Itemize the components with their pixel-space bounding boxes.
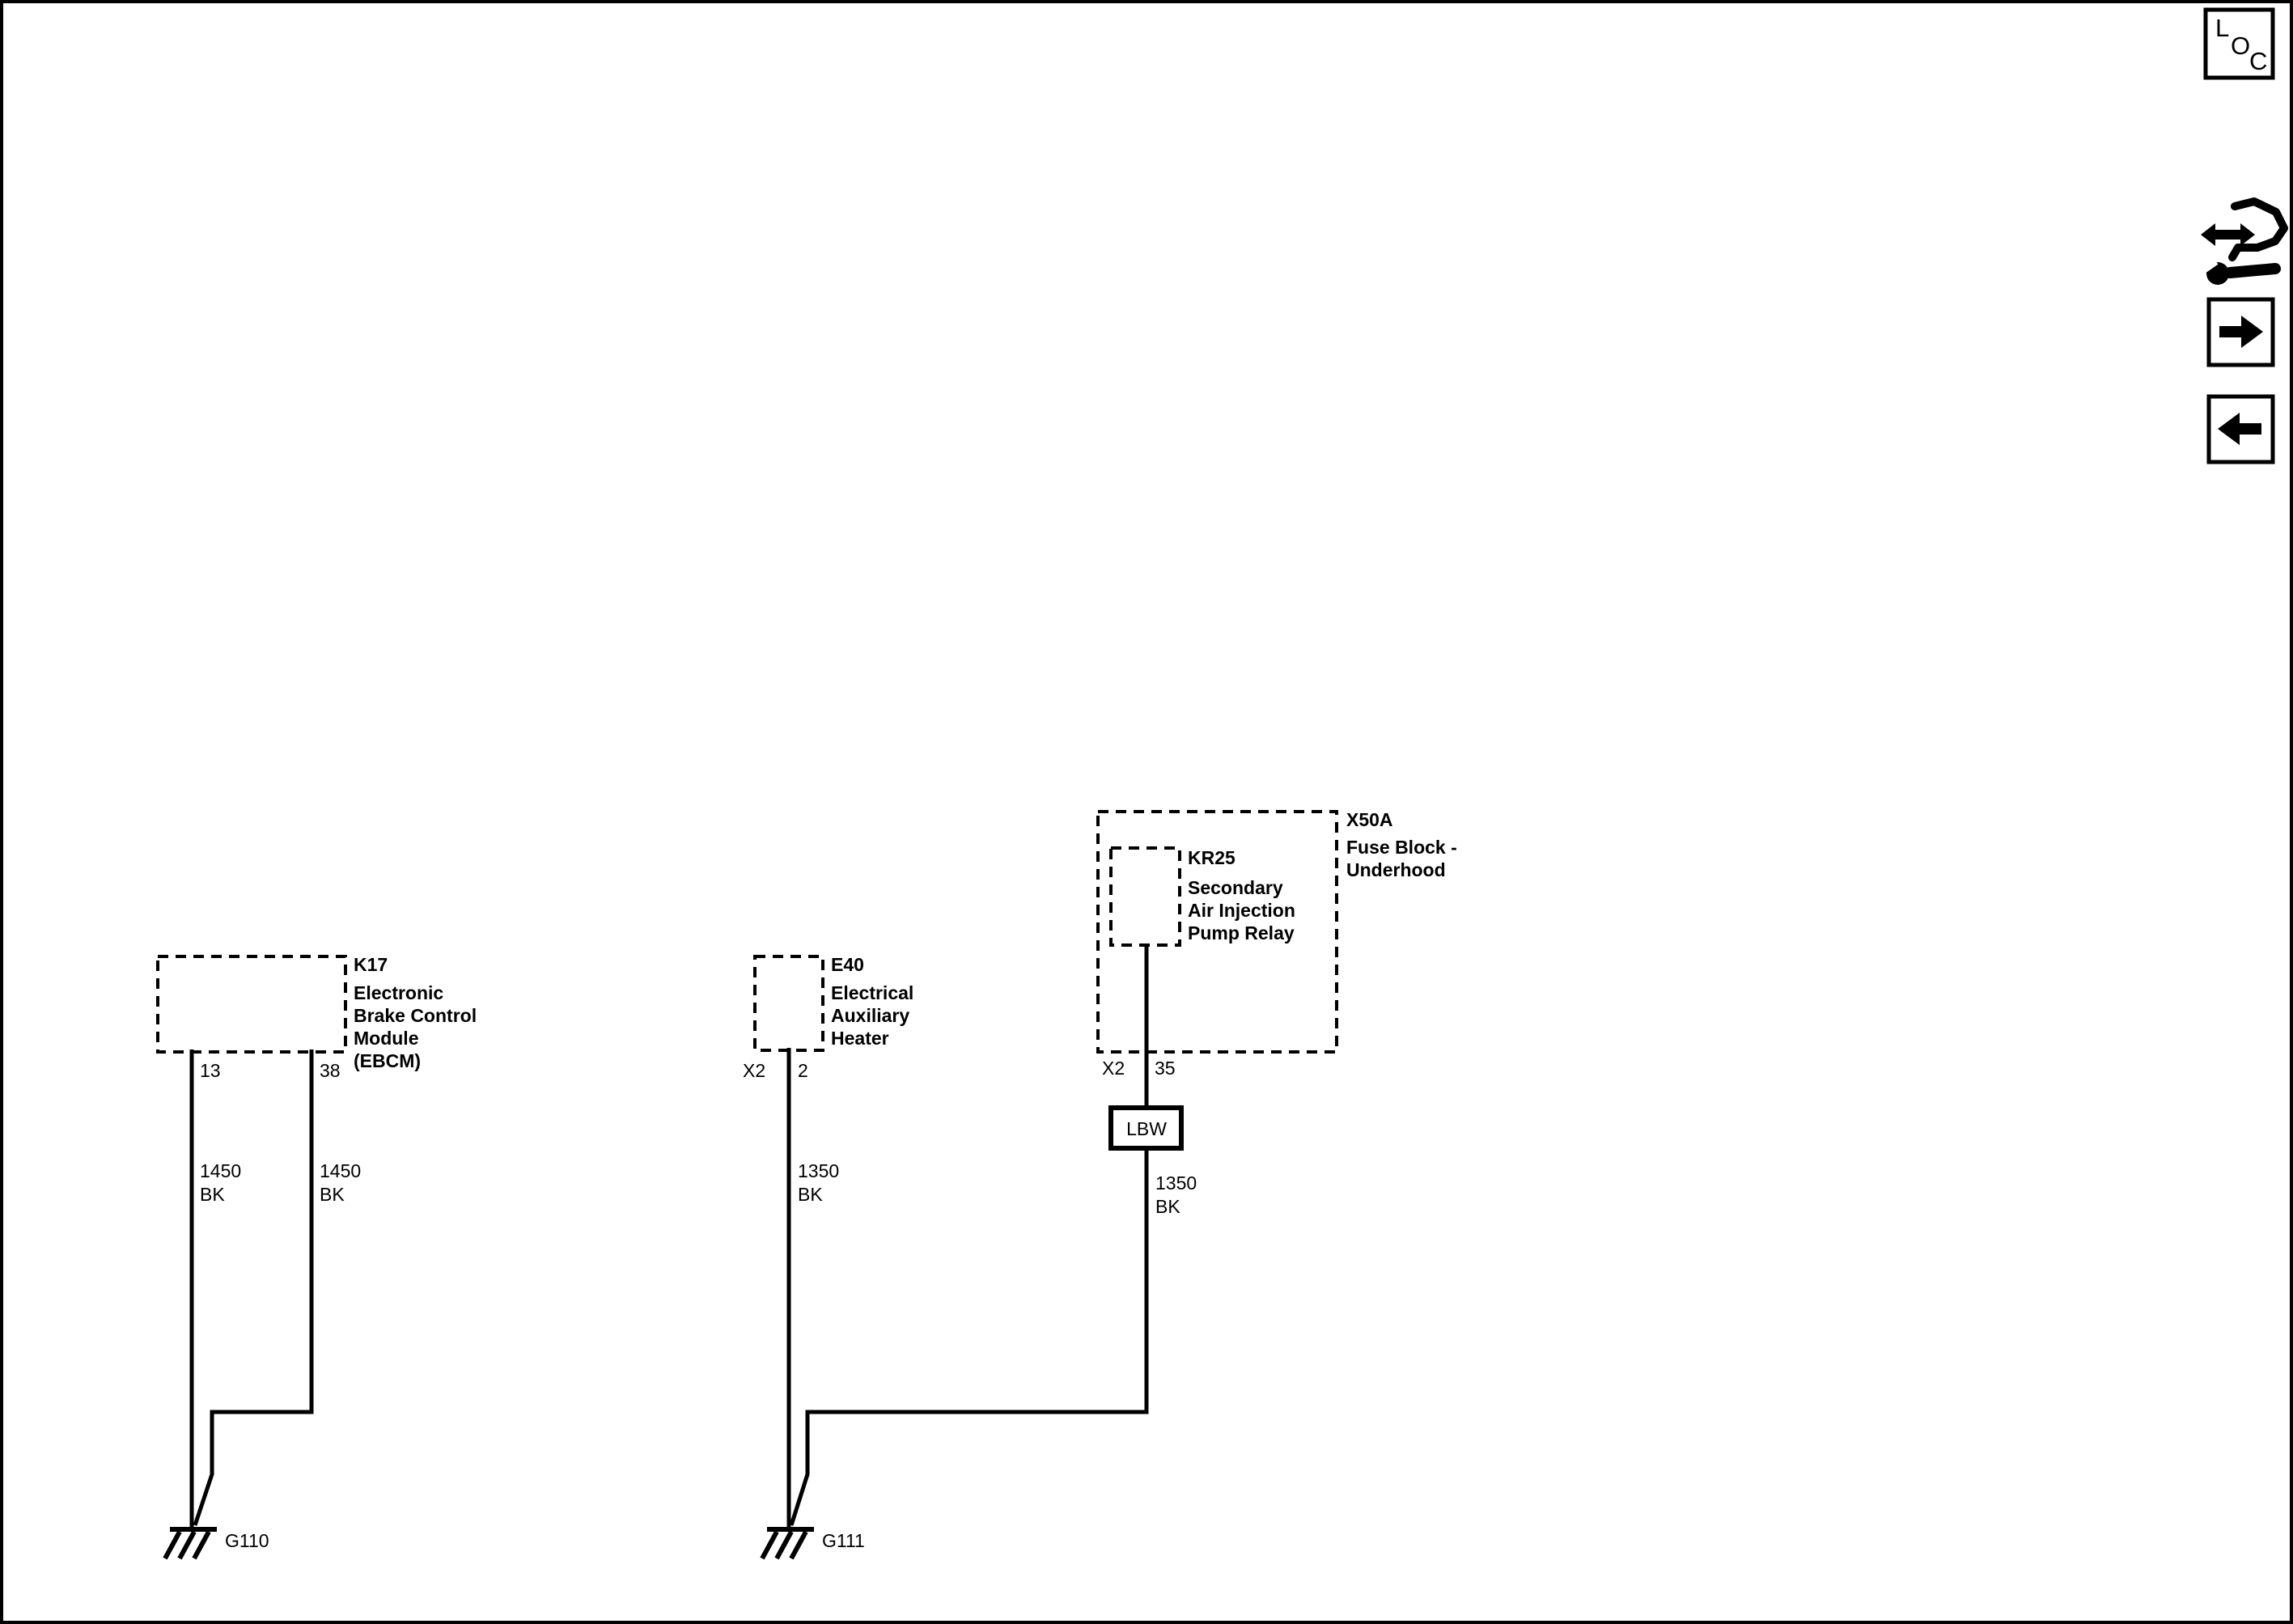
- k17-id-label: K17: [354, 954, 388, 975]
- wire-color: BK: [320, 1184, 345, 1205]
- component-e40-heater: E40 Electrical Auxiliary Heater X2 2: [743, 954, 913, 1081]
- ground-g110-label: G110: [225, 1530, 269, 1551]
- ground-g110: G110: [165, 1529, 269, 1558]
- loc-button[interactable]: L O C: [2206, 10, 2273, 78]
- loc-letter-o: O: [2231, 32, 2250, 60]
- ground-hatches: [762, 1532, 806, 1558]
- k17-pin-13-label: 13: [200, 1060, 221, 1081]
- double-arrow-shape: [2201, 223, 2255, 246]
- lbw-label: LBW: [1126, 1118, 1167, 1139]
- back-button[interactable]: [2209, 396, 2273, 462]
- e40-name-line2: Auxiliary: [831, 1005, 909, 1026]
- e40-connector-label: X2: [743, 1060, 765, 1081]
- e40-box: [755, 956, 823, 1050]
- x50a-id-label: X50A: [1346, 809, 1393, 830]
- x50a-connector-label: X2: [1102, 1058, 1125, 1079]
- e40-name-line1: Electrical: [831, 982, 913, 1003]
- k17-name-line3: Module: [354, 1028, 419, 1049]
- ground-g111: G111: [762, 1529, 865, 1558]
- wire-label-1350-kr25: 1350 BK: [1155, 1172, 1197, 1217]
- hook-arrow-shape: [2232, 201, 2284, 257]
- e40-pin-2-label: 2: [798, 1060, 808, 1081]
- k17-name-line1: Electronic: [354, 982, 443, 1003]
- e40-name-line3: Heater: [831, 1028, 889, 1049]
- wire-label-1450-right: 1450 BK: [320, 1160, 361, 1205]
- wiring-diagram-page: L O C K17 Electronic Brake Control Modul…: [0, 0, 2293, 1624]
- wire-label-1350-e40: 1350 BK: [798, 1160, 839, 1205]
- forward-button[interactable]: [2209, 299, 2273, 365]
- k17-name-line4: (EBCM): [354, 1050, 421, 1071]
- component-k17-ebcm: K17 Electronic Brake Control Module (EBC…: [158, 954, 477, 1081]
- circuit-number: 1350: [1155, 1172, 1197, 1194]
- loc-letter-l: L: [2215, 14, 2229, 42]
- component-kr25-relay: KR25 Secondary Air Injection Pump Relay: [1111, 847, 1295, 945]
- kr25-box: [1111, 848, 1180, 945]
- x50a-pin-35-label: 35: [1155, 1058, 1176, 1079]
- kr25-name-line1: Secondary: [1188, 877, 1283, 898]
- wire-1350-kr25-pin35: [791, 1148, 1146, 1525]
- k17-pin-38-label: 38: [320, 1060, 341, 1081]
- ground-g111-label: G111: [822, 1530, 865, 1551]
- x50a-name-line1: Fuse Block -: [1346, 837, 1457, 858]
- ground-hatches: [165, 1532, 209, 1558]
- wrench-handle: [2230, 269, 2275, 273]
- wire-color: BK: [200, 1184, 225, 1205]
- wire-1450-k17-pin38: [195, 1049, 312, 1525]
- wire-color: BK: [1155, 1196, 1180, 1217]
- k17-name-line2: Brake Control: [354, 1005, 477, 1026]
- kr25-id-label: KR25: [1188, 847, 1236, 868]
- circuit-number: 1450: [200, 1160, 241, 1181]
- splice-lbw: LBW: [1111, 1108, 1181, 1148]
- circuit-number: 1450: [320, 1160, 361, 1181]
- k17-box: [158, 956, 345, 1052]
- kr25-name-line3: Pump Relay: [1188, 922, 1295, 943]
- wire-color: BK: [798, 1184, 823, 1205]
- e40-id-label: E40: [831, 954, 864, 975]
- kr25-name-line2: Air Injection: [1188, 900, 1295, 921]
- x50a-name-line2: Underhood: [1346, 859, 1446, 880]
- wire-label-1450-left: 1450 BK: [200, 1160, 241, 1205]
- circuit-number: 1350: [798, 1160, 839, 1181]
- wrench-double-arrow-icon[interactable]: [2201, 201, 2284, 285]
- loc-letter-c: C: [2249, 47, 2267, 75]
